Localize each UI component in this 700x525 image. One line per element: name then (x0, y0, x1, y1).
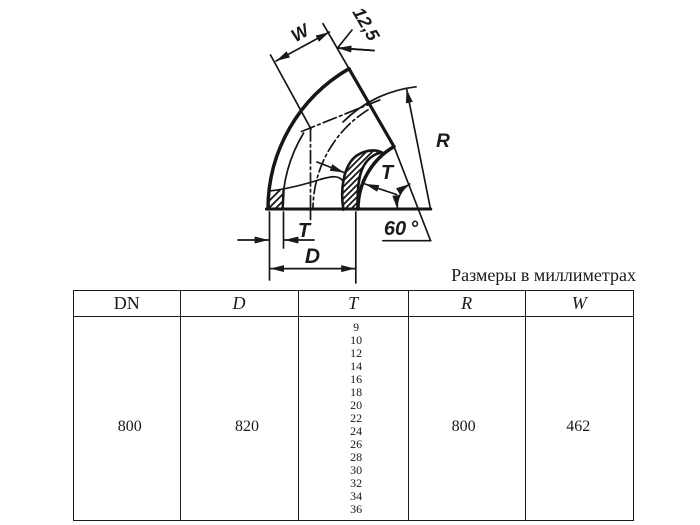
svg-text:60 °: 60 ° (384, 218, 419, 240)
svg-text:T: T (381, 162, 395, 184)
svg-text:R: R (436, 131, 450, 152)
svg-text:12,5: 12,5 (349, 4, 384, 45)
svg-text:D: D (305, 245, 320, 268)
svg-text:T: T (298, 220, 312, 242)
